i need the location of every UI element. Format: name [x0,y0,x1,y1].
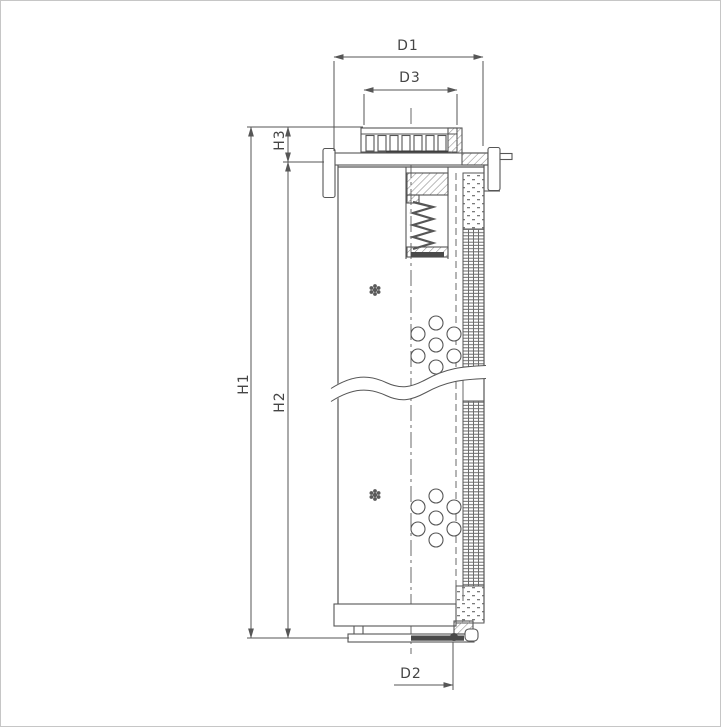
resin-pot-top [463,173,484,229]
dimension-h3: H3 [272,127,288,162]
bottom-seal-dot [450,633,458,641]
core-tube [456,173,463,601]
flange-right-stub [500,154,512,160]
perforation-cluster-lower [411,489,461,547]
perforation-hole [429,511,443,525]
flange-hatch-right [462,153,488,165]
perforation-hole [411,349,425,363]
dimension-h1: H1 [236,127,252,638]
h2-label: H2 [272,391,288,412]
valve-spring [413,202,433,249]
perforation-hole [429,338,443,352]
d2-label: D2 [400,666,422,682]
perforation-hole [411,327,425,341]
asterisk-mark-upper [370,284,381,296]
resin-pot-bottom [456,586,484,623]
perforation-hole [447,327,461,341]
perforation-hole [429,316,443,330]
valve-hatched-step [407,195,419,203]
filter-media-mesh [456,173,484,623]
perforation-hole [429,360,443,374]
h3-label: H3 [272,129,288,150]
flange-right-tab [488,148,500,191]
h1-label: H1 [236,373,252,394]
bottom-end-cap [334,604,478,642]
dimension-d2: D2 [394,642,453,690]
perforation-hole [429,489,443,503]
perforation-hole [447,500,461,514]
d3-label: D3 [399,70,421,86]
perforation-hole [447,349,461,363]
dimension-h2: H2 [272,162,288,638]
perforation-hole [411,500,425,514]
perforation-hole [447,522,461,536]
valve-foot-dark [411,252,444,258]
drawing-page: D1 D3 H1 H2 H3 [0,0,721,727]
perforation-hole [411,522,425,536]
bottom-right-tab [465,629,478,641]
end-cap-body [334,604,456,626]
flange-left-tab [323,149,335,198]
asterisk-mark-lower [370,489,381,501]
d1-label: D1 [397,38,419,54]
technical-drawing: D1 D3 H1 H2 H3 [1,1,720,726]
valve-hatched-block [407,173,448,195]
perforation-cluster-upper [411,316,461,374]
bypass-valve [406,167,448,259]
perforation-hole [429,533,443,547]
